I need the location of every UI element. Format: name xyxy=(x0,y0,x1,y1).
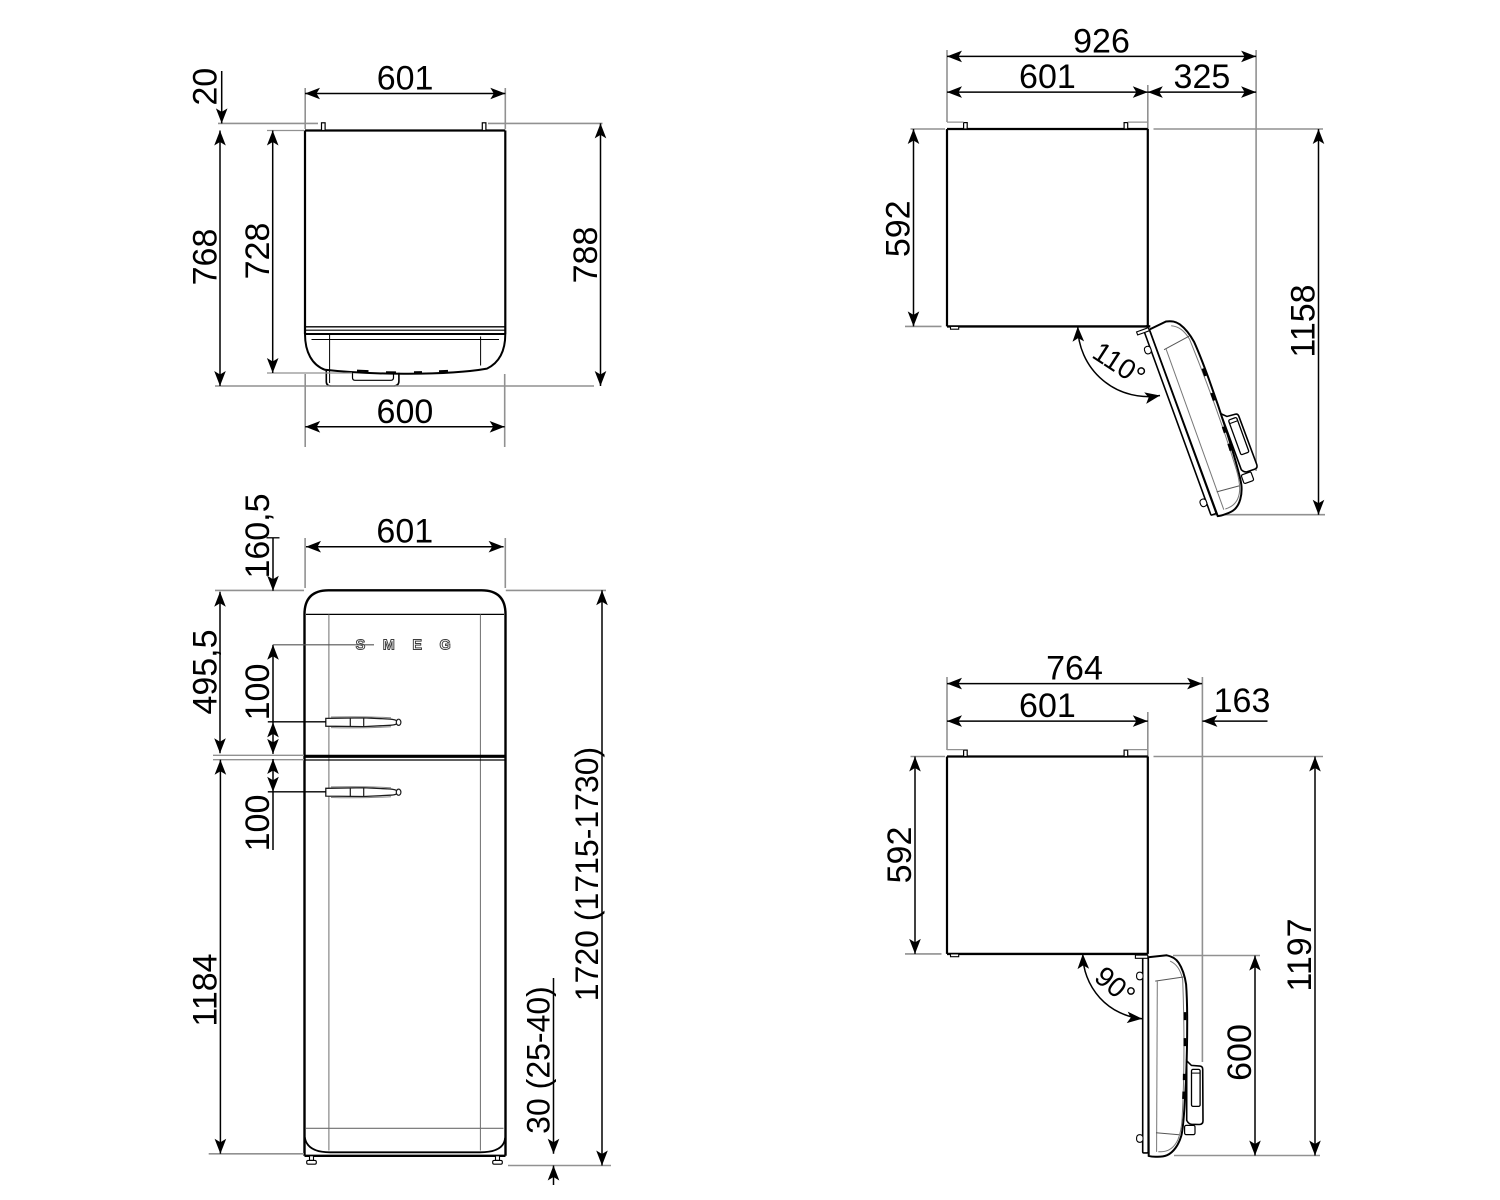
svg-text:100: 100 xyxy=(239,795,277,852)
svg-text:601: 601 xyxy=(1019,687,1076,725)
svg-text:100: 100 xyxy=(239,664,277,721)
svg-text:1720 (1715-1730): 1720 (1715-1730) xyxy=(569,747,605,1001)
svg-text:592: 592 xyxy=(880,200,918,257)
svg-text:788: 788 xyxy=(567,227,605,284)
svg-text:160,5: 160,5 xyxy=(239,493,277,578)
svg-text:601: 601 xyxy=(376,513,433,551)
svg-text:728: 728 xyxy=(239,223,277,280)
svg-text:592: 592 xyxy=(881,827,919,884)
svg-text:495,5: 495,5 xyxy=(187,629,225,714)
svg-text:1197: 1197 xyxy=(1281,918,1319,991)
svg-text:30 (25-40): 30 (25-40) xyxy=(521,986,557,1134)
svg-text:601: 601 xyxy=(377,60,434,98)
svg-text:764: 764 xyxy=(1046,650,1103,688)
svg-text:1184: 1184 xyxy=(186,953,224,1026)
svg-text:600: 600 xyxy=(1221,1024,1259,1081)
svg-text:325: 325 xyxy=(1174,58,1231,96)
svg-text:600: 600 xyxy=(377,393,434,431)
svg-text:20: 20 xyxy=(187,68,225,106)
svg-text:601: 601 xyxy=(1019,58,1076,96)
svg-text:768: 768 xyxy=(187,229,225,286)
svg-text:1158: 1158 xyxy=(1285,284,1323,357)
svg-text:163: 163 xyxy=(1214,682,1271,720)
svg-text:926: 926 xyxy=(1073,22,1130,60)
